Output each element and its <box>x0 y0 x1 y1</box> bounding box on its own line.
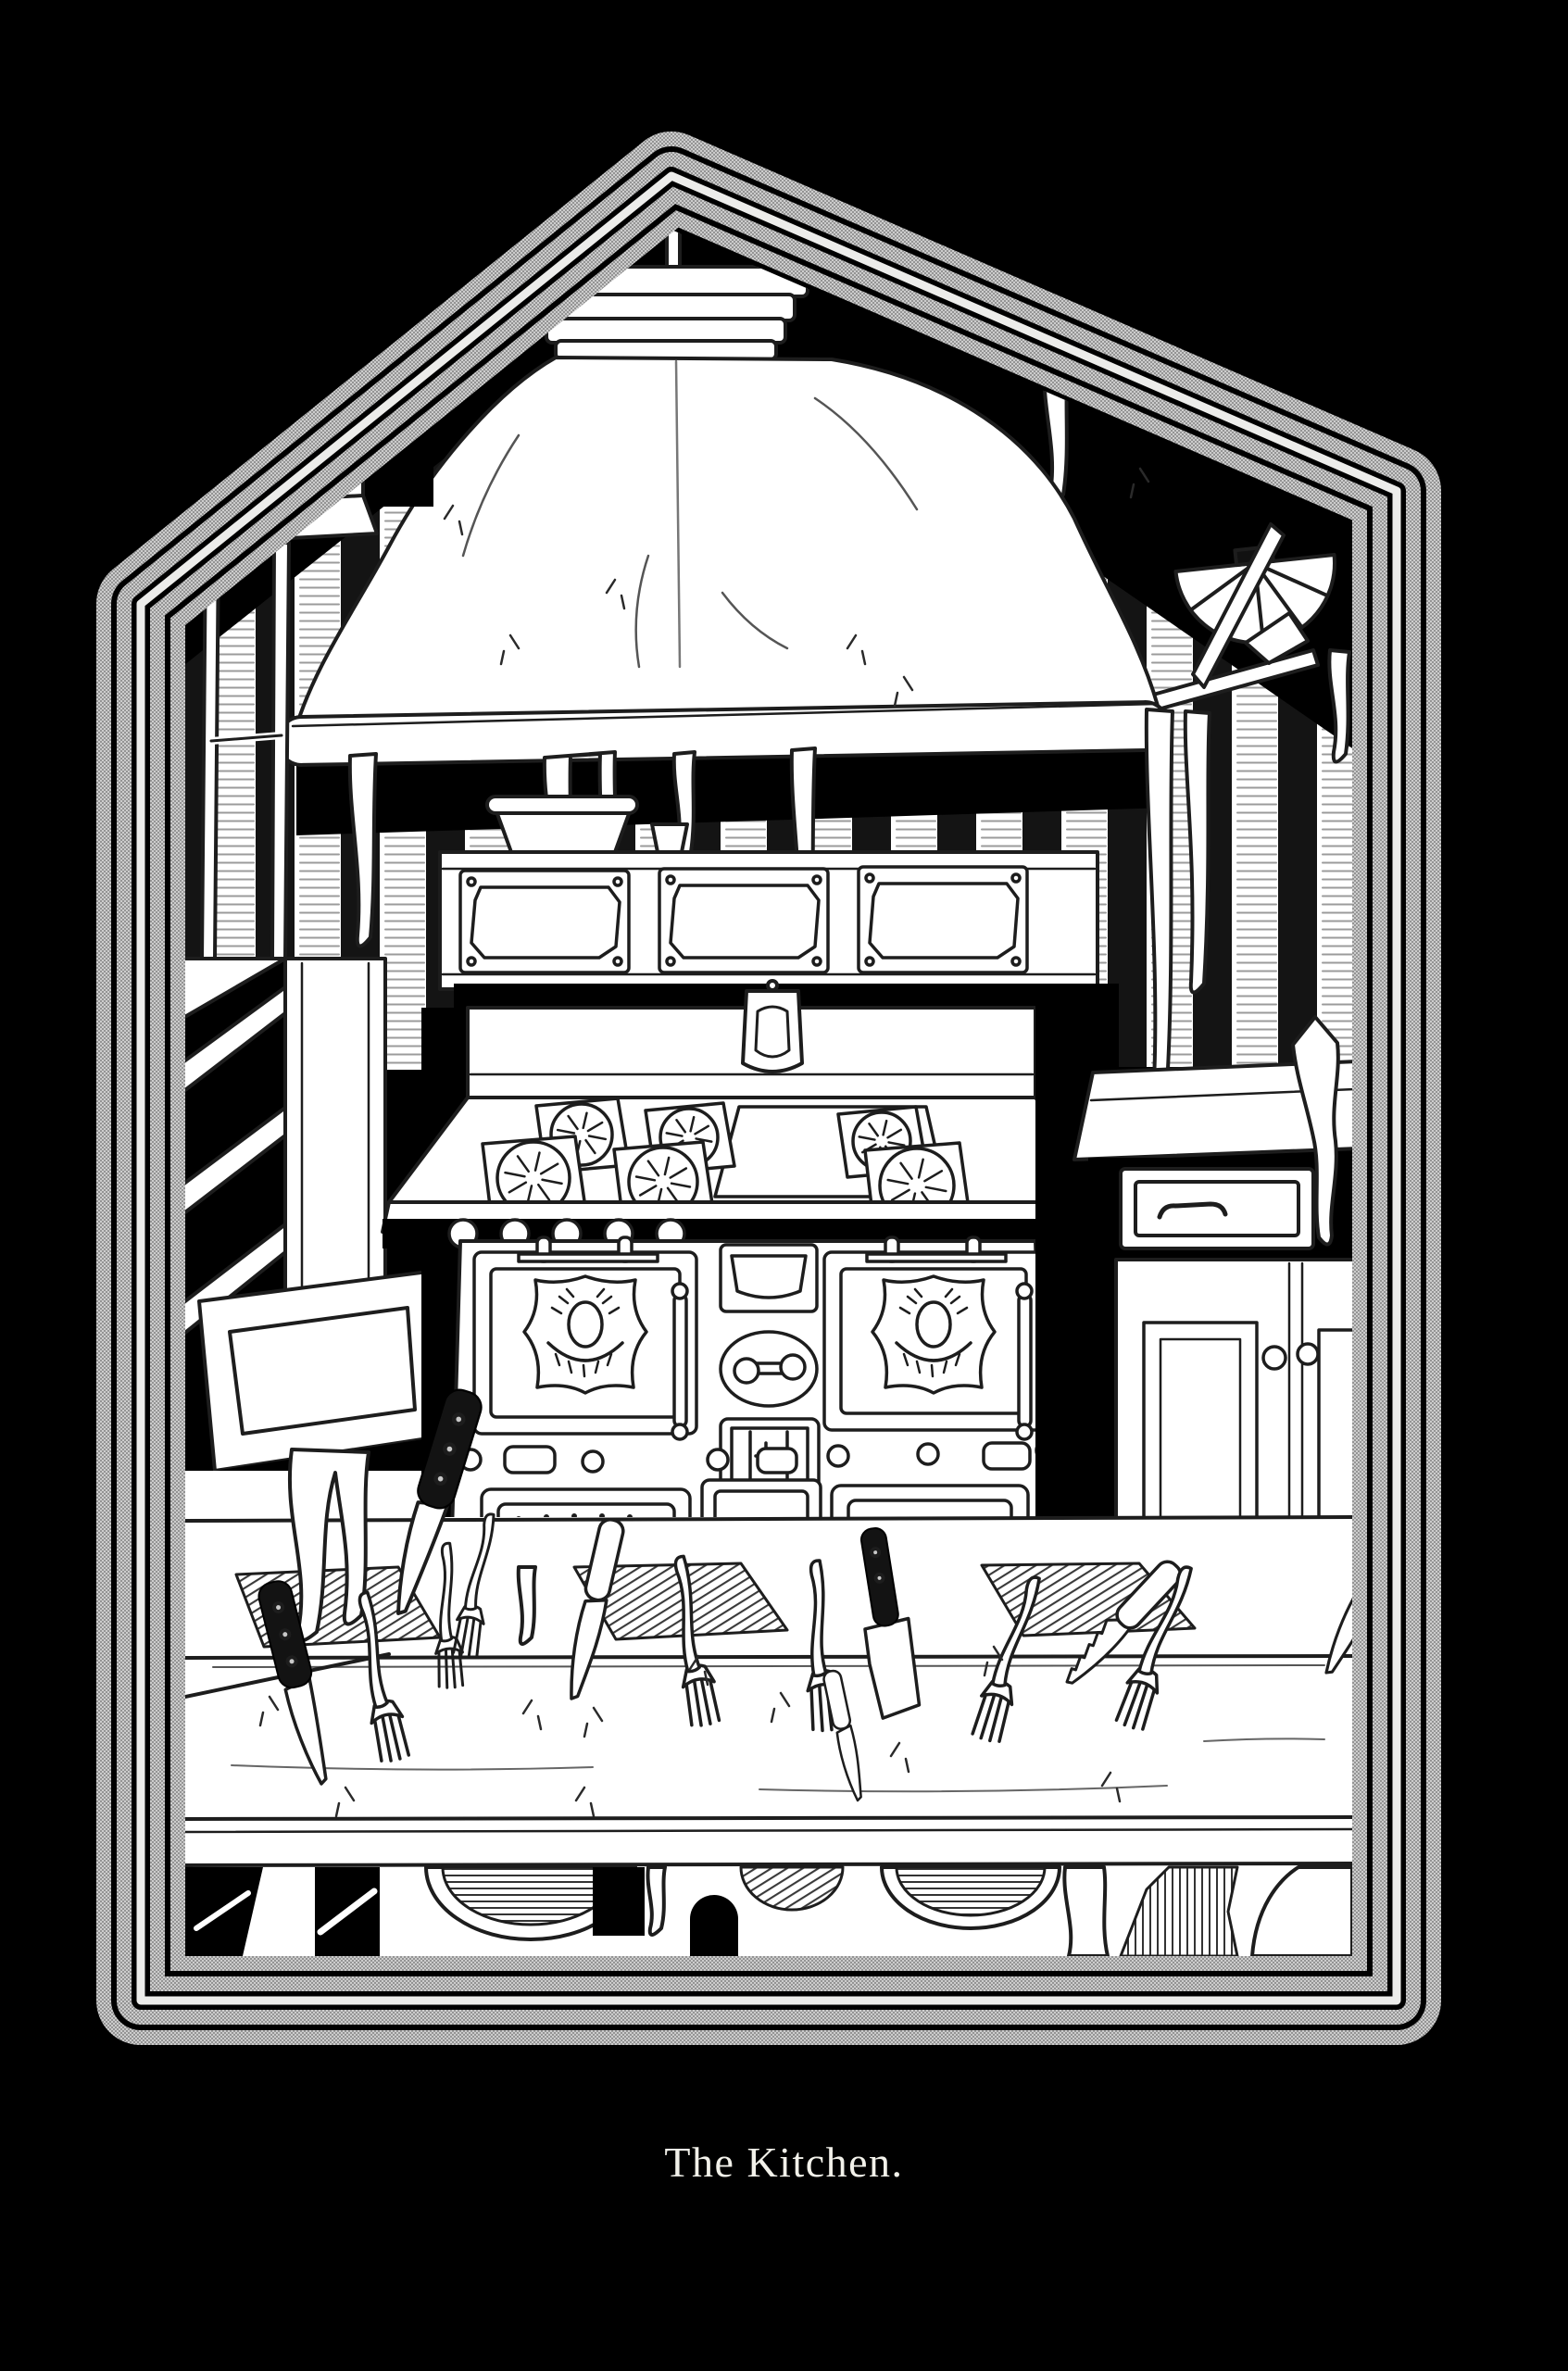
kitchen-illustration <box>0 0 1568 2371</box>
illustration-page: The Kitchen. <box>0 0 1568 2371</box>
under-table <box>182 1863 1352 1956</box>
oven-door-right <box>824 1237 1043 1439</box>
kitchen-table <box>182 1654 1352 1819</box>
oven-door-left <box>474 1237 696 1439</box>
caption: The Kitchen. <box>0 2138 1568 2187</box>
table-edge <box>182 1817 1352 1865</box>
stove-shelf <box>440 852 1098 989</box>
